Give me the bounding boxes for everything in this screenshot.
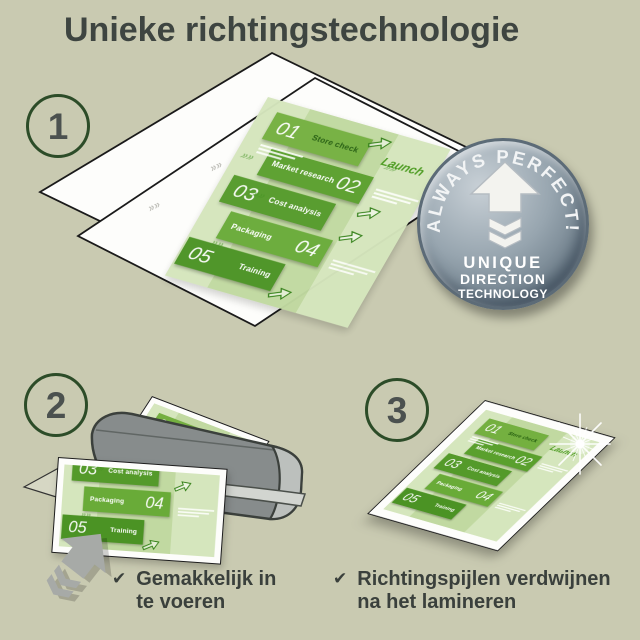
badge-line-unique: UNIQUE <box>463 254 542 272</box>
doc-step-number: 02 <box>332 173 364 197</box>
doc-step-label: Market research <box>270 160 336 186</box>
badge-line-technology: TECHNOLOGY <box>458 287 548 301</box>
doc-step-label: Cost analysis <box>108 467 153 477</box>
badge-line-direction: DIRECTION <box>460 271 546 287</box>
doc-step-label: Store check <box>506 431 539 444</box>
doc-step-label: Store check <box>310 134 360 155</box>
check-icon: ✔ <box>112 568 126 614</box>
benefit-arrows-disappear: ✔ Richtingspijlen verdwijnen na het lami… <box>333 568 611 614</box>
doc-step-number: 04 <box>291 237 323 261</box>
doc-step-number: 03 <box>441 457 465 471</box>
always-perfect-badge: ALWAYS PERFECT! UNIQUE DIRECTION TECHNOL… <box>417 138 589 310</box>
direction-watermark: »» <box>236 151 257 163</box>
laminator-direction-infographic: Unieke richtingstechnologie 1 »» »» »» L… <box>0 0 640 640</box>
doc-step-label: Cost analysis <box>266 196 323 219</box>
doc-step-label: Packaging <box>229 223 274 242</box>
step-3-badge: 3 <box>365 378 429 442</box>
doc-step-number: 04 <box>145 495 164 513</box>
doc-caption-lines <box>178 508 216 520</box>
doc-step-label: Packaging <box>435 480 464 492</box>
doc-step-number: 05 <box>399 491 423 505</box>
doc-caption-lines <box>494 503 528 517</box>
up-arrow-icon <box>471 162 539 248</box>
benefit-easy-feed: ✔ Gemakkelijk in te voeren <box>112 568 276 614</box>
benefit-text-line1: Gemakkelijk in <box>136 568 276 590</box>
doc-step-number: 04 <box>472 489 496 503</box>
shine-sparkle-icon <box>548 412 612 476</box>
doc-step-label: Cost analysis <box>465 466 502 480</box>
benefit-text-line2: te voeren <box>136 591 225 613</box>
doc-tile-04: 04 Packaging <box>83 486 171 517</box>
direction-arrow-icon <box>176 464 199 473</box>
doc-step-label: Packaging <box>90 495 125 505</box>
doc-caption-lines <box>327 259 377 282</box>
benefit-text-line2: na het lamineren <box>357 591 516 613</box>
doc-step-number: 01 <box>481 422 505 436</box>
doc-tile-03: 03 Cost analysis <box>72 464 160 486</box>
direction-arrow-icon <box>355 204 382 222</box>
direction-arrow-icon <box>337 228 364 246</box>
benefit-text-line1: Richtingspijlen verdwijnen <box>357 568 610 590</box>
doc-step-label: Training <box>237 263 273 280</box>
doc-step-number: 01 <box>272 119 304 143</box>
doc-step-label: Training <box>432 503 456 513</box>
check-icon: ✔ <box>333 568 347 614</box>
step-3-number: 3 <box>387 392 408 429</box>
